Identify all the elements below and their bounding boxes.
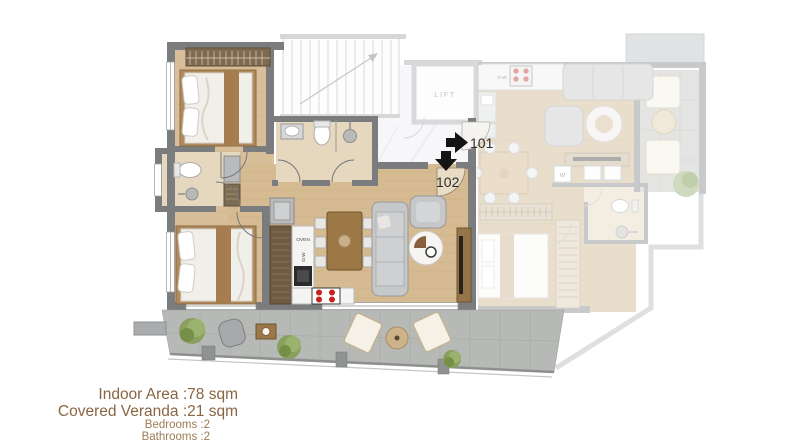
plant [277,335,301,359]
neighbor-dishwasher-label: D.W [497,75,507,81]
lift-label: LIFT [434,90,455,99]
unit-102-label: 102 [436,174,460,190]
round-table [652,110,676,134]
toilet [179,163,201,178]
unit-101-label: 101 [470,135,494,151]
bed-throw [224,71,239,145]
stove [510,66,532,86]
neighbor-sofa [563,64,653,100]
plant [179,318,205,344]
plant-inner [682,172,698,188]
stat-bedrooms-label: Bedrooms : [145,419,204,431]
toilet [612,200,629,213]
bed-runner [500,234,514,298]
neighbor-bedroom [478,204,580,308]
bedroom-1 [180,48,270,146]
neighbor-armchair [545,106,583,146]
lounge-chair [646,140,680,174]
plant [443,350,461,368]
stat-bedrooms-value: 2 [204,419,210,431]
stat-indoor-area: Indoor Area :78 sqm [98,386,238,403]
stat-covered-veranda-value: 21 sqm [187,403,238,420]
neighbor-bathroom-floor [584,186,644,242]
stat-indoor-area-value: 78 sqm [187,386,238,403]
stat-covered-veranda-label: Covered Veranda : [58,403,187,420]
pillow [178,231,196,260]
sink [604,166,621,180]
oven-label: OVEN [296,237,310,243]
veranda [134,310,564,377]
table-bowl [339,235,351,247]
neighbor-washer-label: W [560,173,566,179]
roof-block [626,34,704,64]
sofa-pillow [377,215,391,229]
shower-head [344,130,357,143]
neighbor-tv [573,157,621,161]
stat-bathrooms: Bathrooms :2 [142,431,210,443]
shower-head [186,188,198,200]
bedroom-2 [176,226,256,304]
dishwasher-label: D.W [301,252,307,262]
cabinet [224,156,240,182]
floor-plan-svg: LIFT [0,0,796,448]
pillow [178,263,196,292]
pier [202,346,215,360]
stat-bedrooms: Bedrooms :2 [145,419,210,431]
floor-plan-page: LIFT [0,0,796,448]
stat-covered-veranda: Covered Veranda :21 sqm [58,403,238,420]
coffee-table-plate [426,247,436,257]
dining-area [315,212,374,270]
stats-block: Indoor Area :78 sqm Covered Veranda :21 … [58,386,238,443]
pier [336,352,347,367]
stat-bathrooms-label: Bathrooms : [142,431,204,443]
cooktop [312,288,340,304]
cup [262,328,270,336]
tv [459,236,463,294]
wardrobe [186,48,270,66]
stat-indoor-area-label: Indoor Area : [98,386,187,403]
neighbor-coffee-table-top [595,115,613,133]
pillow [182,75,200,104]
sink [584,166,601,180]
pillow [182,107,199,136]
cup [395,336,400,341]
bed-throw [216,227,231,303]
stat-bathrooms-value: 2 [204,431,210,443]
wall-stub [134,322,166,335]
shower-head [616,226,628,238]
neighbor-dining [471,143,538,204]
sink [481,95,493,105]
